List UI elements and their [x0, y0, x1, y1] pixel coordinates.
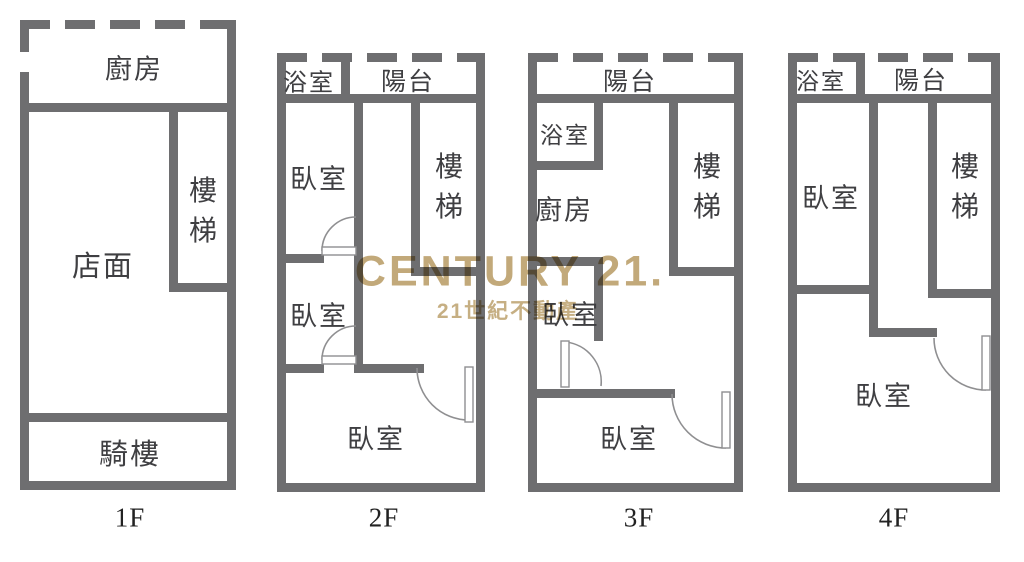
wall [928, 94, 937, 298]
floor-label-1f: 1F [115, 503, 146, 534]
door-leaf-icon [982, 336, 990, 390]
floor-label-4f: 4F [879, 503, 910, 534]
door-leaf-icon [322, 356, 356, 364]
room-label-balcony: 陽台 [381, 62, 435, 98]
wall [528, 389, 675, 398]
door-arc [566, 342, 601, 386]
wall [788, 285, 878, 294]
room-label-bedroom: 臥室 [802, 177, 860, 216]
wall [354, 94, 363, 373]
room-label-balcony: 陽台 [603, 62, 657, 98]
wall [277, 53, 485, 62]
wall [788, 483, 1000, 492]
door-leaf-icon [322, 247, 356, 255]
room-label-bathroom: 浴室 [283, 63, 335, 98]
room-label-balcony: 陽台 [894, 61, 948, 97]
wall [20, 103, 236, 112]
wall [20, 20, 29, 52]
door-arc [322, 217, 356, 251]
door-leaf-icon [561, 341, 569, 387]
room-label-kitchen: 廚房 [535, 189, 593, 228]
wall [528, 483, 743, 492]
century21-watermark-subtitle: 21世紀不動產 [437, 295, 579, 325]
wall [856, 53, 865, 103]
room-label-stairs: 樓梯 [187, 172, 219, 252]
door-leaf-icon [465, 367, 473, 422]
door-arc [672, 394, 726, 448]
wall [286, 254, 324, 263]
door-arc [417, 368, 469, 420]
room-label-kitchen: 廚房 [105, 48, 163, 87]
wall [20, 20, 236, 29]
wall [991, 53, 1000, 492]
room-label-stairs: 樓梯 [691, 148, 723, 228]
wall [286, 364, 324, 373]
wall [277, 53, 286, 492]
room-label-bedroom: 臥室 [290, 295, 348, 334]
wall [669, 267, 743, 276]
room-label-stairs: 樓梯 [949, 148, 981, 228]
wall [169, 283, 236, 292]
wall [354, 364, 424, 373]
wall [341, 53, 350, 103]
door-arc [934, 338, 986, 390]
wall [594, 94, 603, 170]
wall [869, 94, 878, 337]
wall [528, 161, 603, 170]
room-label-arcade: 騎樓 [99, 431, 161, 473]
century21-watermark: CENTURY 21. [355, 248, 665, 297]
door-leaf-icon [722, 392, 730, 448]
room-label-bedroom: 臥室 [855, 375, 913, 414]
wall [928, 289, 1000, 298]
floorplan-page: { "watermark": { "title": "CENTURY 21.",… [0, 0, 1024, 562]
wall [788, 53, 797, 492]
wall [20, 72, 29, 490]
wall [277, 483, 485, 492]
floor-label-3f: 3F [624, 503, 655, 534]
wall [169, 103, 178, 292]
wall [528, 53, 743, 62]
wall [669, 94, 678, 276]
wall [869, 328, 937, 337]
room-label-bedroom: 臥室 [600, 418, 658, 457]
room-label-stairs: 樓梯 [433, 148, 465, 228]
room-label-bathroom: 浴室 [796, 62, 846, 96]
wall [20, 481, 236, 490]
room-label-storefront: 店面 [72, 243, 134, 285]
wall [20, 413, 236, 422]
room-label-bedroom: 臥室 [347, 418, 405, 457]
floor-label-2f: 2F [369, 503, 400, 534]
room-label-bathroom: 浴室 [540, 116, 590, 150]
room-label-bedroom: 臥室 [290, 158, 348, 197]
